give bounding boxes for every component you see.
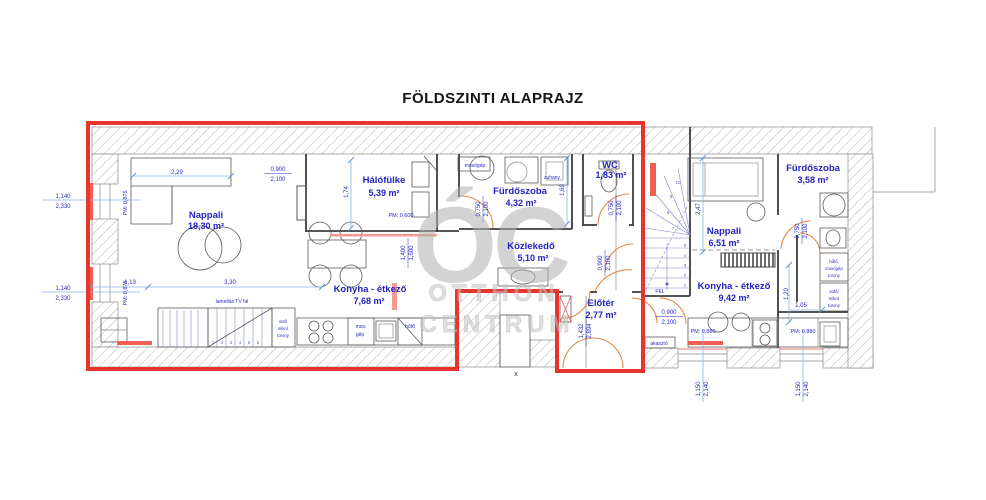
dim-door: 2,100	[617, 200, 623, 216]
stool	[732, 313, 750, 331]
page-title: FÖLDSZINTI ALAPRAJZ	[402, 90, 583, 107]
dim-door: 0,900	[598, 255, 604, 271]
stair-number: 10	[675, 180, 681, 185]
label-fel: FEL	[655, 289, 664, 295]
dim-120: 1,20	[784, 288, 790, 300]
dim-door: 0,750	[476, 201, 482, 217]
room-area-halofulke: 5,39 m²	[368, 188, 399, 198]
bed	[688, 158, 763, 201]
stair-number: 7	[672, 226, 675, 231]
room-area-nappali-1: 18,30 m²	[188, 221, 224, 231]
label-tower-left: torony	[277, 333, 290, 338]
room-name-nappali-1: Nappali	[189, 210, 223, 221]
stair-number: 4	[239, 340, 242, 345]
dim-window: 2,140	[704, 381, 710, 397]
room-area-konyha-2: 9,42 m²	[718, 293, 749, 303]
stair-number: 5	[684, 243, 687, 248]
room-area-furdoszoba-2: 3,58 m²	[797, 175, 828, 185]
dim-door: 2,100	[803, 223, 809, 239]
dim-door: 2,100	[484, 201, 490, 217]
dim-window: 1,140	[55, 194, 71, 200]
dim-105: 1,05	[795, 303, 807, 309]
dim-door: 0,900	[270, 167, 286, 173]
dim-1500: 1,500	[409, 245, 415, 261]
label-tower-right-2: torony	[828, 303, 841, 308]
dim-1432: 1,432	[579, 323, 585, 339]
stair-number: 6	[257, 340, 260, 345]
room-name-halofulke: Hálófülke	[363, 175, 406, 186]
dim-door: 2,100	[661, 320, 677, 326]
label-mos-gep: mos.	[356, 324, 367, 330]
room-area-furdoszoba-1: 4,32 m²	[505, 198, 536, 208]
dim-door: 2,100	[606, 255, 612, 271]
stair-number: 1	[684, 283, 687, 288]
tv-wall-cabinet	[158, 308, 208, 347]
dim-pm880: PM: 0,880	[690, 329, 715, 335]
dining-table	[308, 240, 366, 268]
label-mos-gep: gép	[356, 332, 365, 338]
dim-pm875: PM: 0,875	[123, 190, 129, 215]
label-tower-right-1: hűtő,	[829, 259, 839, 264]
label-tower-left: mikró	[278, 326, 289, 331]
floor-plan-page: FÖLDSZINTI ALAPRAJZ	[0, 0, 986, 500]
stair-number: 2	[684, 273, 687, 278]
dim-window: 2,330	[55, 296, 71, 302]
label-tower-right-1: mosógép	[825, 266, 843, 271]
room-name-furdoszoba-1: Fürdőszoba	[493, 186, 548, 197]
dim-174: 1,74	[344, 186, 350, 198]
label-huto: hűtő	[405, 324, 415, 330]
dim-window: 1,150	[696, 381, 702, 397]
room-name-furdoszoba-2: Fürdőszoba	[786, 163, 841, 174]
dim-window: 2,330	[55, 204, 71, 210]
room-area-eloter: 2,77 m²	[585, 310, 616, 320]
dim-pm875: PM: 0,875	[123, 280, 129, 305]
room-area-wc: 1,83 m²	[595, 170, 626, 180]
label-tv-fal: lamellás TV fal	[216, 299, 249, 305]
label-x-mark: x	[514, 371, 518, 378]
room-area-konyha-1: 7,68 m²	[353, 296, 384, 306]
room-area-kozlekedo: 5,10 m²	[517, 253, 548, 263]
dim-door: 0,750	[795, 223, 801, 239]
stair-number: 5	[248, 340, 251, 345]
toilet-right	[826, 230, 840, 246]
watermark-line1: OTTHON	[428, 280, 559, 307]
label-tower-right-2: mikró	[829, 296, 840, 301]
dim-247: 2,47	[696, 203, 702, 215]
stair-number: 4	[684, 253, 687, 258]
label-mosogep: mosógép	[465, 163, 486, 169]
label-akaszto: akasztó	[650, 341, 667, 347]
dim-2894: 2,894	[587, 323, 593, 339]
label-tower-right-2: sütő/	[829, 289, 839, 294]
floor-plan-drawing: FÖLDSZINTI ALAPRAJZ	[0, 0, 986, 500]
dim-window: 2,140	[804, 381, 810, 397]
room-name-eloter: Előtér	[588, 298, 615, 309]
dim-169: 1,69	[560, 184, 566, 196]
watermark-line2: CENTRUM	[420, 311, 575, 338]
dim-window: 1,140	[55, 286, 71, 292]
stair-number: 2	[221, 340, 224, 345]
label-zuhany: zuhany	[544, 175, 561, 181]
dim-pm880: PM: 0,880	[790, 329, 815, 335]
dim-229: 2,29	[171, 170, 183, 176]
dim-1400: 1,400	[401, 245, 407, 261]
dim-door: 2,100	[270, 177, 286, 183]
stair-number: 1	[212, 340, 215, 345]
dim-pm600: PM: 0,600	[388, 213, 413, 219]
dim-door: 0,750	[609, 200, 615, 216]
washbasin	[823, 194, 845, 216]
dim-330: 3,30	[224, 280, 236, 286]
watermark: ÓC OTTHON CENTRUM	[413, 184, 575, 338]
dim-door: 0,900	[661, 310, 677, 316]
round-table	[178, 226, 222, 270]
label-tower-left: sütő	[279, 319, 288, 324]
label-tower-right-1: torony	[828, 273, 841, 278]
room-area-nappali-2: 6,51 m²	[708, 238, 739, 248]
oven	[820, 322, 840, 346]
stairs-left: 1 2 3 4 5 6	[208, 308, 272, 347]
stair-number: 3	[230, 340, 233, 345]
stair-number: 3	[684, 263, 687, 268]
room-name-konyha-2: Konyha - étkező	[698, 281, 771, 292]
room-name-kozlekedo: Közlekedő	[507, 241, 555, 252]
room-name-nappali-2: Nappali	[707, 226, 741, 237]
dim-window: 1,150	[796, 381, 802, 397]
room-name-konyha-1: Konyha - étkező	[334, 284, 407, 295]
side-table	[747, 203, 765, 221]
radiator-bench	[721, 253, 775, 267]
